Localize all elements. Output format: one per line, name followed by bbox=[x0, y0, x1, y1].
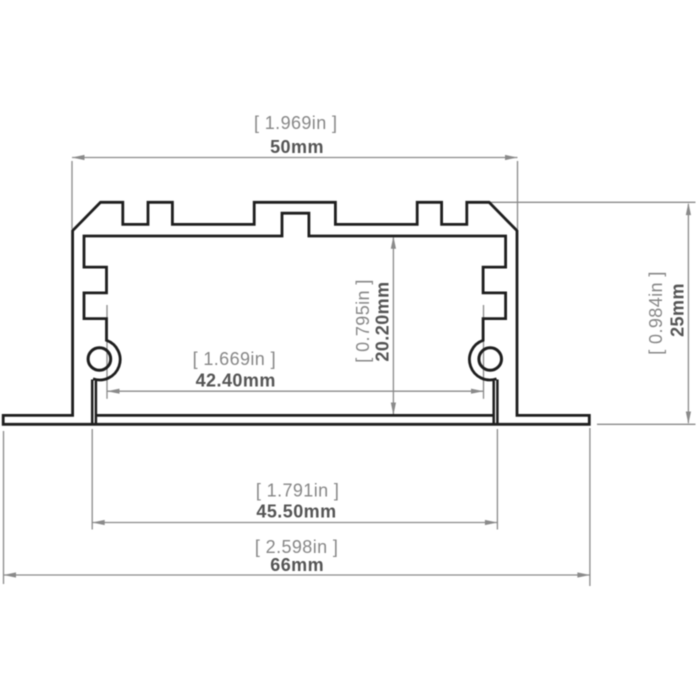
svg-text:[ 1.669in ]: [ 1.669in ] bbox=[193, 349, 276, 369]
svg-text:42.40mm: 42.40mm bbox=[196, 370, 276, 390]
svg-text:[ 0.984in ]: [ 0.984in ] bbox=[646, 271, 666, 354]
svg-text:66mm: 66mm bbox=[270, 555, 324, 575]
svg-text:45.50mm: 45.50mm bbox=[256, 502, 336, 522]
svg-text:[ 0.795in ]: [ 0.795in ] bbox=[353, 279, 373, 362]
svg-text:[ 1.791in ]: [ 1.791in ] bbox=[256, 481, 339, 501]
svg-text:25mm: 25mm bbox=[667, 283, 687, 337]
svg-text:[ 2.598in ]: [ 2.598in ] bbox=[255, 537, 338, 557]
svg-text:50mm: 50mm bbox=[270, 137, 324, 157]
svg-text:20.20mm: 20.20mm bbox=[373, 281, 393, 361]
svg-text:[ 1.969in ]: [ 1.969in ] bbox=[254, 113, 337, 133]
